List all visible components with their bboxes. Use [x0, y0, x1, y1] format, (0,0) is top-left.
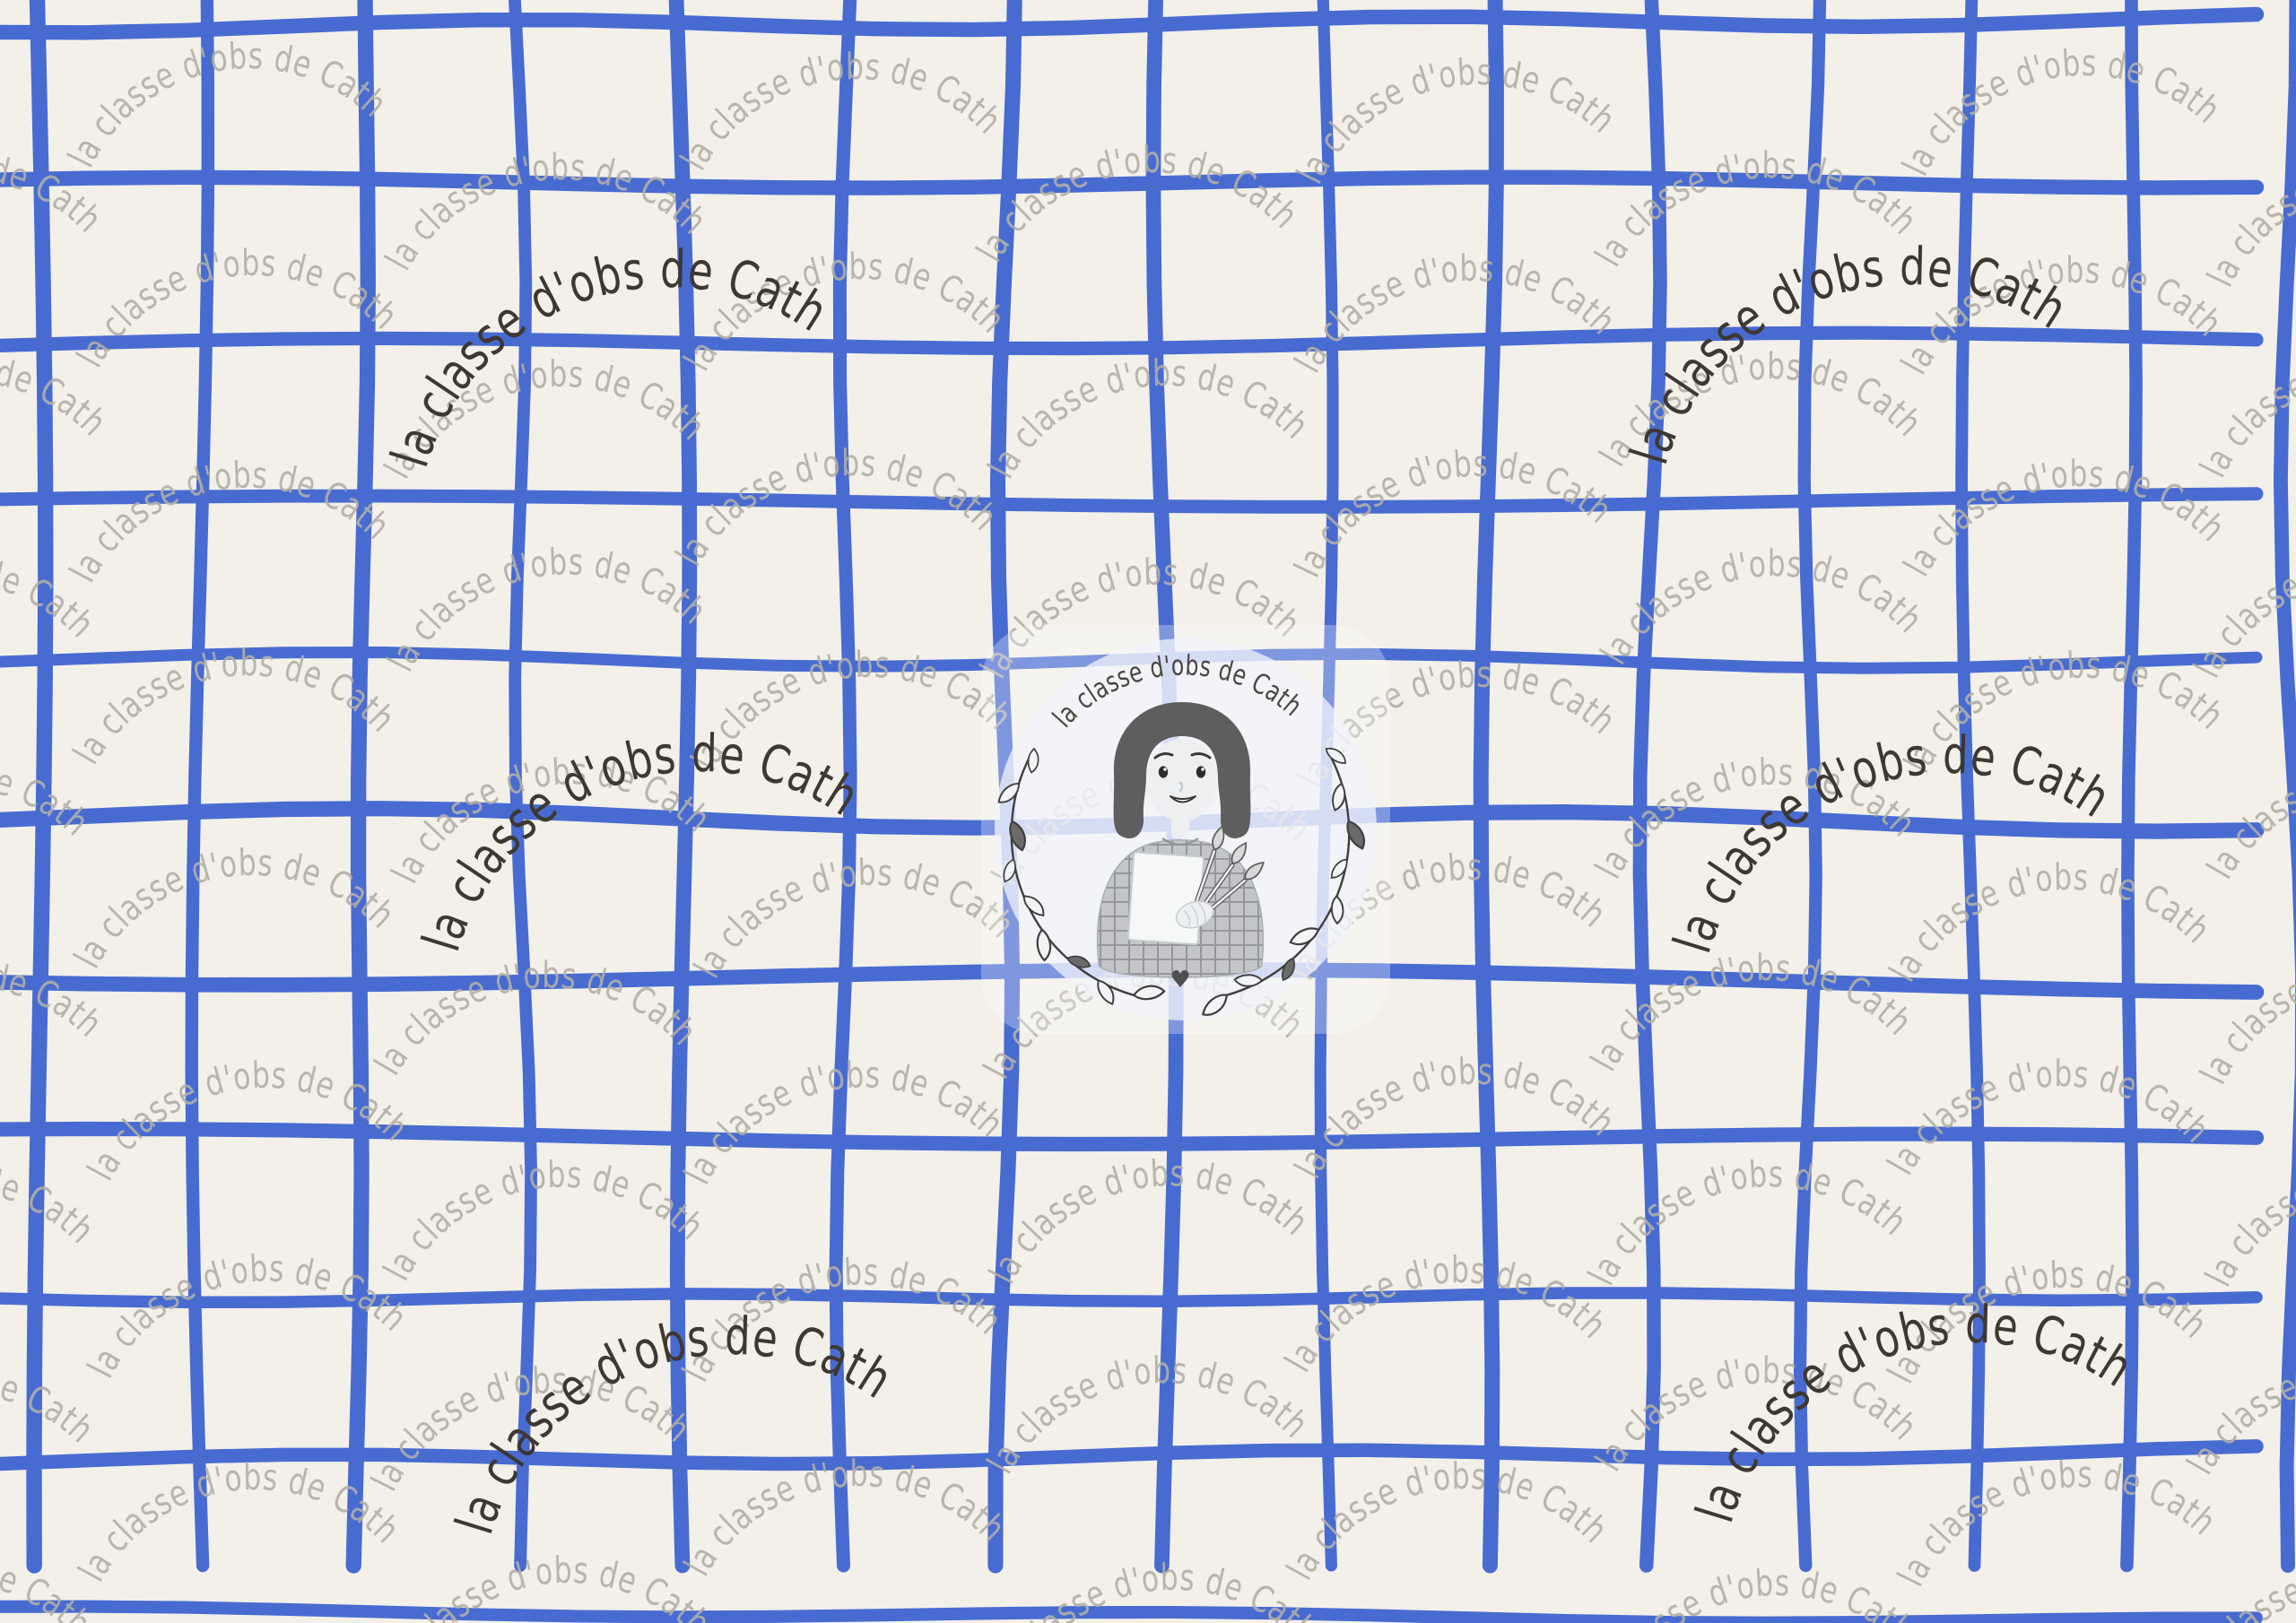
pattern-canvas: la classe d'obs de Cathla classe d'obs d… — [0, 0, 2296, 1623]
watermarked-grid-pattern: la classe d'obs de Cathla classe d'obs d… — [0, 0, 2296, 1623]
eye-right-highlight — [1201, 768, 1204, 770]
heart-icon: ♥ — [1170, 967, 1190, 994]
grid-line-vertical — [2126, 0, 2135, 1566]
sketchbook — [1128, 852, 1205, 944]
face — [1146, 739, 1218, 821]
eye-left-highlight — [1163, 768, 1166, 770]
eye-right — [1196, 766, 1205, 777]
logo-sticker: la classe d'obs de Cath — [981, 625, 1390, 1034]
eye-left — [1159, 766, 1168, 777]
